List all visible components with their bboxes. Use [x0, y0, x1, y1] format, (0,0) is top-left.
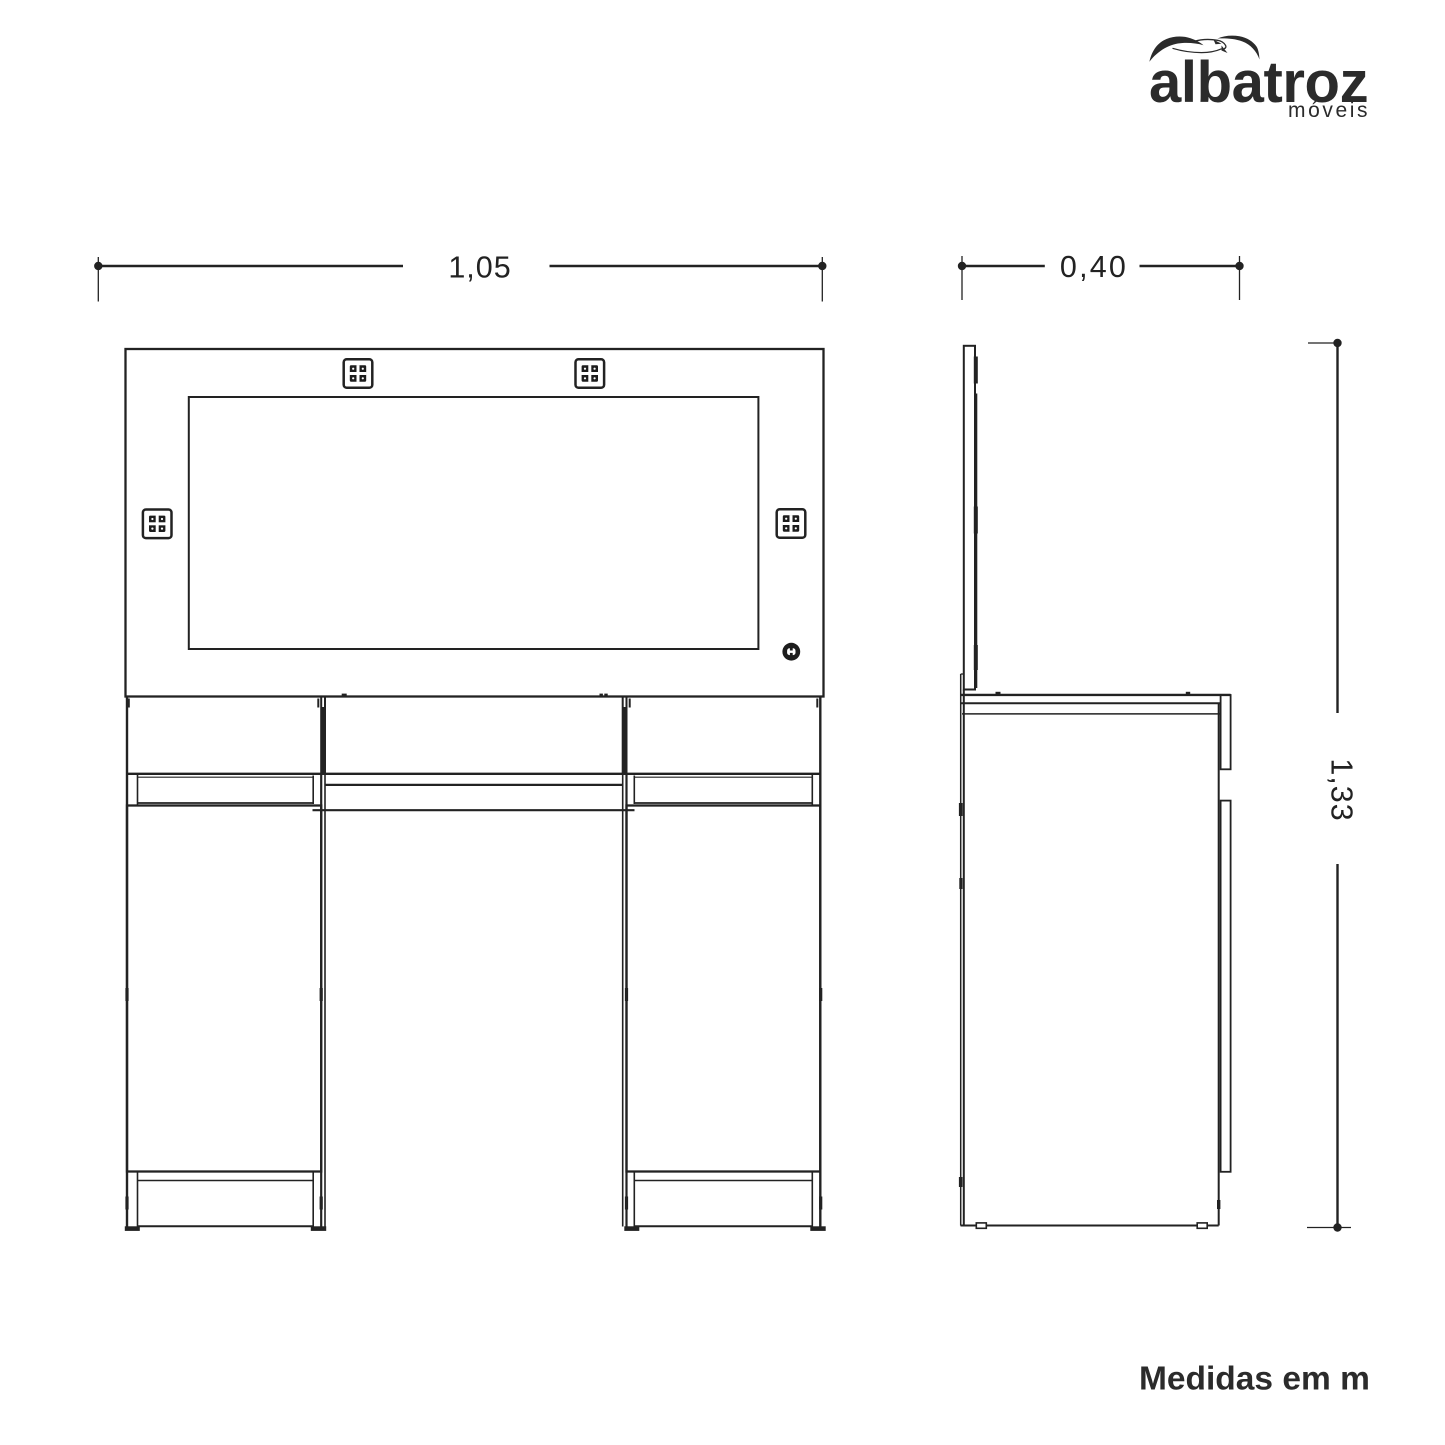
- svg-text:Medidas em m: Medidas em m: [1139, 1361, 1370, 1398]
- svg-text:móveis: móveis: [1288, 99, 1370, 122]
- svg-text:1,05: 1,05: [448, 251, 511, 285]
- svg-text:0,40: 0,40: [1060, 250, 1128, 284]
- svg-text:1,33: 1,33: [1325, 758, 1359, 821]
